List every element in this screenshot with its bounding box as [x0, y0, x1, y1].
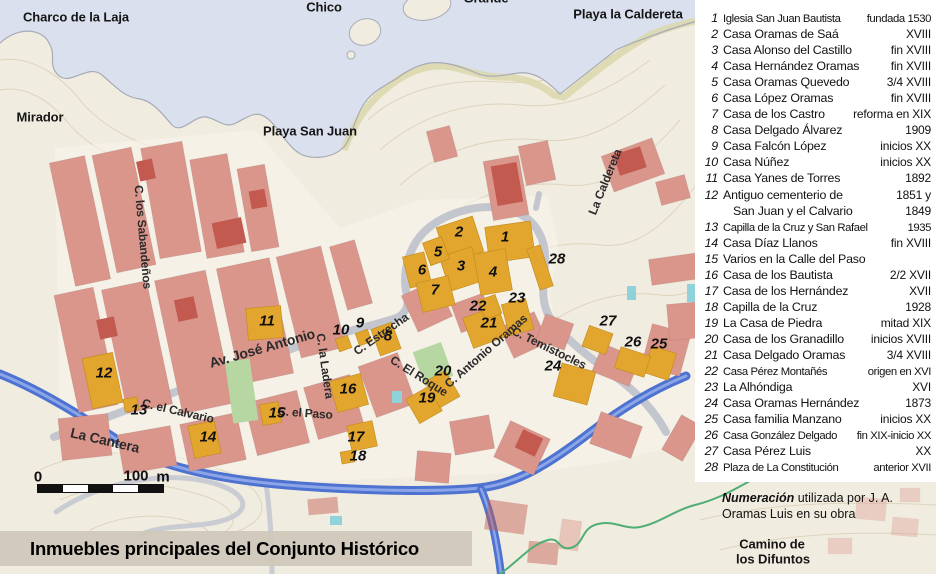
legend-row: 14 Casa Díaz Llanos fin XVIII — [701, 235, 931, 251]
note-rest: utilizada por J. A. — [794, 491, 893, 505]
legend-number: 9 — [701, 138, 718, 154]
scale-bar — [37, 484, 164, 493]
building-number: 23 — [509, 290, 526, 307]
legend-number: 14 — [701, 235, 718, 251]
legend-row: 11 Casa Yanes de Torres 1892 — [701, 170, 931, 186]
legend-number: 20 — [701, 331, 718, 347]
legend-date: inicios XX — [880, 154, 931, 170]
legend-building-name: Casa Delgado Oramas — [723, 347, 887, 363]
legend-row: 15 Varios en la Calle del Paso — [701, 251, 931, 267]
legend-number: 12 — [701, 187, 718, 203]
legend-row: 25 Casa familia Manzano inicios XX — [701, 411, 931, 427]
place-label: Mirador — [17, 110, 64, 125]
legend-building-name: Casa Oramas Hernández — [723, 395, 905, 411]
building-number: 2 — [455, 224, 463, 241]
legend-panel: 1 Iglesia San Juan Bautista fundada 1530… — [695, 0, 936, 482]
legend-building-name: La Casa de Piedra — [723, 315, 881, 331]
legend-number: 19 — [701, 315, 718, 331]
legend-date: XX — [915, 443, 931, 459]
legend-building-name: Casa de los Granadillo — [723, 331, 871, 347]
legend-number: 22 — [701, 363, 718, 379]
legend-row: 22 Casa Pérez Montañés origen en XVI — [701, 363, 931, 379]
legend-building-name: Casa de los Bautista — [723, 267, 890, 283]
legend-date: anterior XVII — [873, 460, 931, 476]
legend-number: 4 — [701, 58, 718, 74]
legend-number: 5 — [701, 74, 718, 90]
legend-number: 11 — [701, 170, 718, 186]
legend-building-name: Casa Oramas de Saá — [723, 26, 906, 42]
legend-number: 2 — [701, 26, 718, 42]
title-band: Inmuebles principales del Conjunto Histó… — [0, 531, 472, 566]
legend-date: inicios XX — [880, 138, 931, 154]
building-number: 20 — [435, 363, 452, 380]
legend-row: 24 Casa Oramas Hernández 1873 — [701, 395, 931, 411]
building-number: 4 — [489, 264, 497, 281]
building-number: 13 — [131, 402, 148, 419]
legend-date: 2/2 XVII — [890, 267, 931, 283]
legend-number: 1 — [701, 10, 718, 26]
building-number: 5 — [434, 244, 442, 261]
legend-building-name: Plaza de La Constitución — [723, 460, 873, 476]
legend-row: 18 Capilla de la Cruz 1928 — [701, 299, 931, 315]
legend-row: 28 Plaza de La Constitución anterior XVI… — [701, 459, 931, 475]
building-number: 19 — [419, 390, 436, 407]
building-number: 15 — [269, 405, 286, 422]
place-label: Playa San Juan — [263, 124, 357, 139]
legend-row: 20 Casa de los Granadillo inicios XVIII — [701, 331, 931, 347]
legend-date: inicios XVIII — [871, 331, 931, 347]
legend-number: 13 — [701, 219, 718, 235]
legend-building-name: Casa de los Castro — [723, 106, 853, 122]
legend-building-name: Casa Falcón López — [723, 138, 880, 154]
legend-row: 1 Iglesia San Juan Bautista fundada 1530 — [701, 10, 931, 26]
building-number: 25 — [651, 336, 668, 353]
legend-date: XVI — [912, 379, 931, 395]
legend-row: 26 Casa González Delgado fin XIX-inicio … — [701, 427, 931, 443]
building-number: 21 — [481, 315, 498, 332]
legend-building-name: Casa Hernández Oramas — [723, 58, 891, 74]
legend-date: fundada 1530 — [867, 11, 931, 27]
note-line2: Oramas Luis en su obra — [722, 507, 855, 521]
building-number: 14 — [200, 429, 217, 446]
legend-row: 4 Casa Hernández Oramas fin XVIII — [701, 58, 931, 74]
legend-number: 27 — [701, 443, 718, 459]
legend-date: 1928 — [905, 299, 931, 315]
legend-building-name: Capilla de la Cruz — [723, 299, 905, 315]
legend-number: 21 — [701, 347, 718, 363]
legend-date: fin XVIII — [891, 58, 931, 74]
legend-date: fin XVIII — [891, 42, 931, 58]
legend-date: 1935 — [907, 220, 931, 236]
legend-row: 9 Casa Falcón López inicios XX — [701, 138, 931, 154]
legend-building-name: Capilla de la Cruz y San Rafael — [723, 220, 907, 236]
legend-building-name: Casa de los Hernández — [723, 283, 909, 299]
legend-building-name: Casa Alonso del Castillo — [723, 42, 891, 58]
legend-number: 24 — [701, 395, 718, 411]
legend-date: reforma en XIX — [853, 106, 931, 122]
place-label: los Difuntos — [736, 552, 810, 567]
legend-row: 23 La Alhóndiga XVI — [701, 379, 931, 395]
legend-date: fin XVIII — [891, 90, 931, 106]
place-label: Grande — [464, 0, 509, 6]
building-number: 22 — [470, 298, 487, 315]
legend-number: 28 — [701, 459, 718, 475]
legend-row: 10 Casa Núñez inicios XX — [701, 154, 931, 170]
map-title: Inmuebles principales del Conjunto Histó… — [30, 538, 419, 560]
building-number: 1 — [501, 229, 509, 246]
legend-date: XVII — [909, 283, 931, 299]
place-label: Charco de la Laja — [23, 10, 129, 25]
place-label: Camino de — [739, 537, 805, 552]
building-number: 17 — [348, 429, 365, 446]
building-number: 26 — [625, 334, 642, 351]
legend-date: 1892 — [905, 170, 931, 186]
place-label: Playa la Caldereta — [573, 7, 683, 22]
legend-number: 10 — [701, 154, 718, 170]
note-bold-word: Numeración — [722, 491, 794, 505]
legend-row: 16 Casa de los Bautista 2/2 XVII — [701, 267, 931, 283]
legend-number: 18 — [701, 299, 718, 315]
legend-row: San Juan y el Calvario 1849 — [701, 203, 931, 219]
building-number: 24 — [545, 358, 562, 375]
legend-date: 1849 — [905, 203, 931, 219]
legend-row: 27 Casa Pérez Luis XX — [701, 443, 931, 459]
legend-date: 3/4 XVIII — [887, 347, 931, 363]
building-number: 6 — [418, 262, 426, 279]
legend-row: 8 Casa Delgado Álvarez 1909 — [701, 122, 931, 138]
building-number: 12 — [96, 365, 113, 382]
legend-date: origen en XVI — [868, 364, 931, 380]
legend-building-name: Casa Díaz Llanos — [723, 235, 891, 251]
building-number: 7 — [431, 282, 439, 299]
legend-building-name: Casa Núñez — [723, 154, 880, 170]
scale-hundred-label: 100 — [123, 468, 148, 485]
legend-number: 15 — [701, 251, 718, 267]
legend-building-name: Casa Pérez Luis — [723, 443, 915, 459]
building-number: 9 — [356, 315, 364, 332]
legend-building-name: San Juan y el Calvario — [723, 203, 905, 219]
legend-number: 17 — [701, 283, 718, 299]
legend-building-name: Iglesia San Juan Bautista — [723, 11, 867, 27]
legend-date: mitad XIX — [881, 315, 931, 331]
building-number: 28 — [549, 251, 566, 268]
building-number: 18 — [350, 448, 367, 465]
legend-building-name: Casa Oramas Quevedo — [723, 74, 887, 90]
legend-number: 23 — [701, 379, 718, 395]
legend-date: XVIII — [906, 26, 931, 42]
legend-building-name: Casa Yanes de Torres — [723, 170, 905, 186]
legend-number: 16 — [701, 267, 718, 283]
legend-row: 13 Capilla de la Cruz y San Rafael 1935 — [701, 219, 931, 235]
legend-row: 7 Casa de los Castro reforma en XIX — [701, 106, 931, 122]
place-label: Chico — [306, 0, 342, 15]
legend-date: fin XIX-inicio XX — [857, 428, 931, 444]
building-number: 8 — [384, 328, 392, 345]
building-number: 11 — [259, 313, 275, 330]
legend-building-name: Casa López Oramas — [723, 90, 891, 106]
legend-number: 7 — [701, 106, 718, 122]
legend-row: 21 Casa Delgado Oramas 3/4 XVIII — [701, 347, 931, 363]
legend-row: 2 Casa Oramas de Saá XVIII — [701, 26, 931, 42]
building-number: 27 — [600, 313, 617, 330]
legend-number: 6 — [701, 90, 718, 106]
building-number: 10 — [333, 322, 350, 339]
building-number: 3 — [457, 258, 465, 275]
legend-number: 26 — [701, 427, 718, 443]
legend-building-name: Casa Delgado Álvarez — [723, 122, 905, 138]
scale-unit-label: m — [156, 469, 169, 486]
legend-building-name: Casa González Delgado — [723, 428, 857, 444]
numbering-note: Numeración utilizada por J. A. Oramas Lu… — [722, 491, 927, 522]
legend-date: 3/4 XVIII — [887, 74, 931, 90]
legend-building-name: Casa Pérez Montañés — [723, 364, 868, 380]
legend-date: fin XVIII — [891, 235, 931, 251]
legend-building-name: Varios en la Calle del Paso — [723, 251, 931, 267]
legend-row: 17 Casa de los Hernández XVII — [701, 283, 931, 299]
legend-date: 1873 — [905, 395, 931, 411]
legend-date: inicios XX — [880, 411, 931, 427]
legend-date: 1909 — [905, 122, 931, 138]
legend-building-name: Casa familia Manzano — [723, 411, 880, 427]
legend-row: 19 La Casa de Piedra mitad XIX — [701, 315, 931, 331]
legend-row: 12 Antiguo cementerio de 1851 y — [701, 187, 931, 203]
legend-row: 6 Casa López Oramas fin XVIII — [701, 90, 931, 106]
building-number: 16 — [340, 381, 357, 398]
legend-building-name: Antiguo cementerio de — [723, 187, 896, 203]
legend-number: 8 — [701, 122, 718, 138]
legend-building-name: La Alhóndiga — [723, 379, 912, 395]
legend-number: 25 — [701, 411, 718, 427]
legend-row: 3 Casa Alonso del Castillo fin XVIII — [701, 42, 931, 58]
legend-row: 5 Casa Oramas Quevedo 3/4 XVIII — [701, 74, 931, 90]
legend-date: 1851 y — [896, 187, 931, 203]
legend-number: 3 — [701, 42, 718, 58]
scale-zero-label: 0 — [34, 469, 42, 486]
historic-map-infographic: Charco de la LajaChicoGrandePlaya la Cal… — [0, 0, 936, 574]
